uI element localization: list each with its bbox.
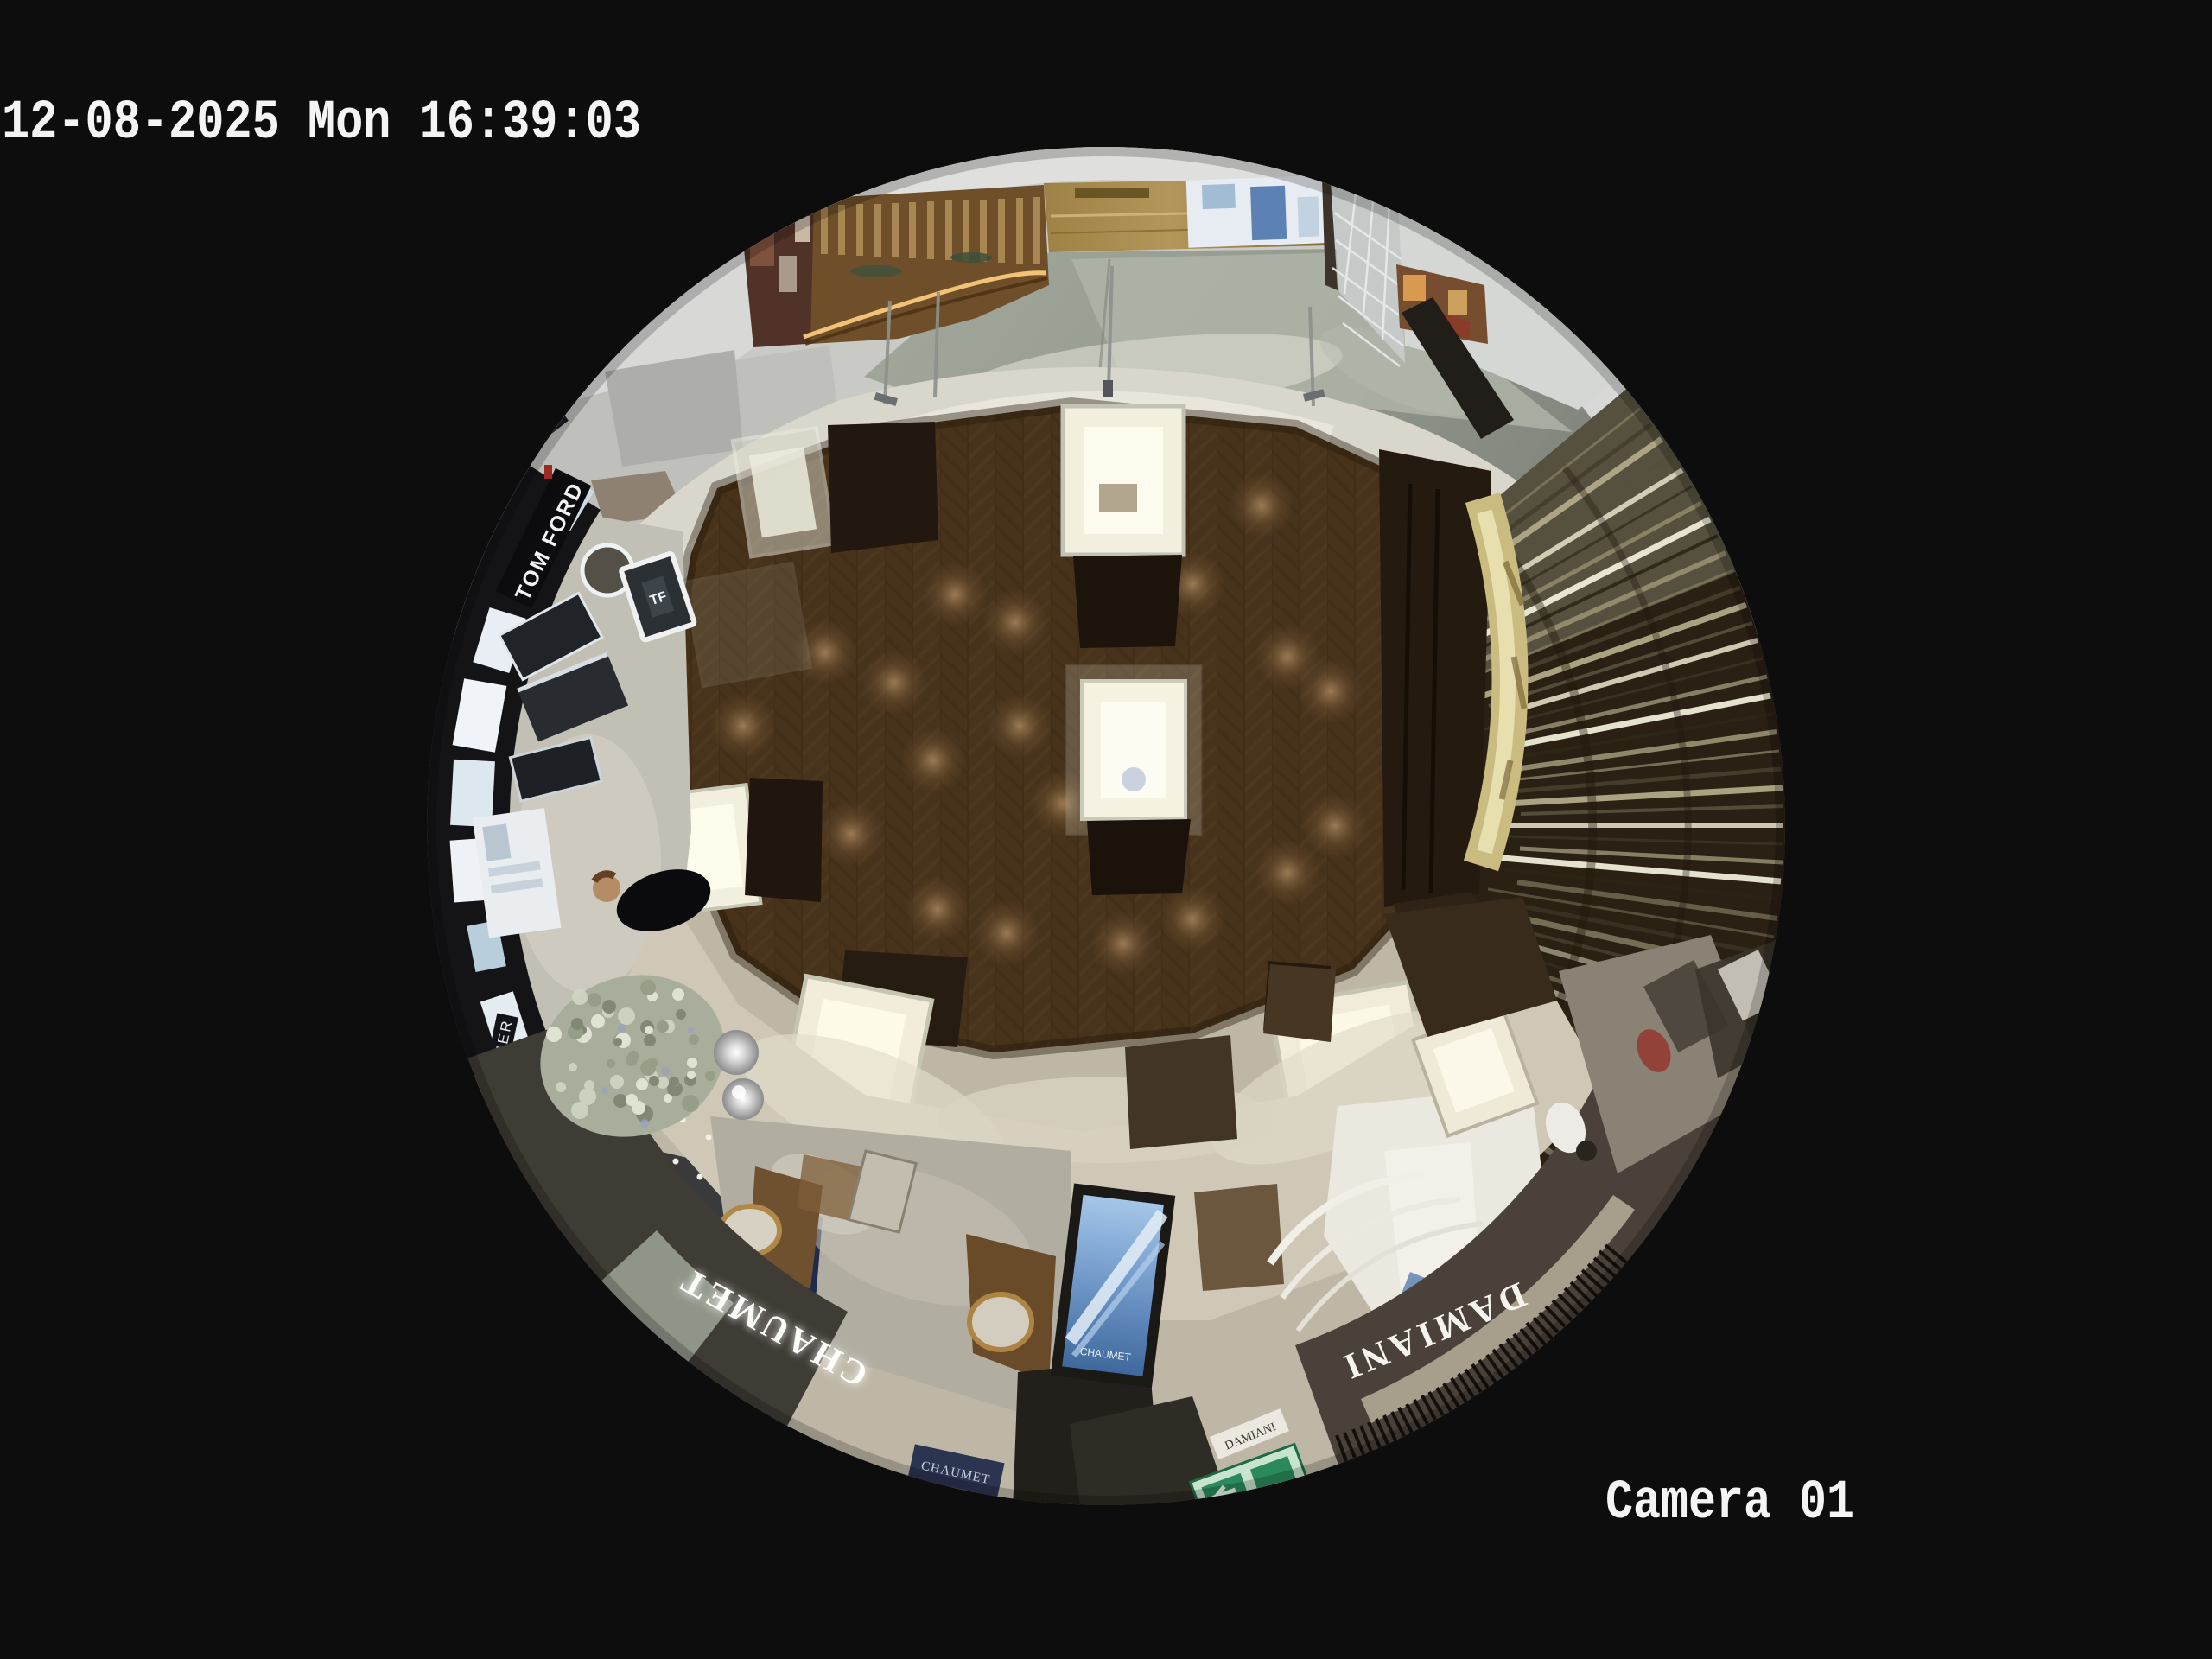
svg-text:12-08-2025 Mon 16:39:03: 12-08-2025 Mon 16:39:03 <box>2 92 641 155</box>
svg-text:Camera 01: Camera 01 <box>1605 1472 1854 1535</box>
